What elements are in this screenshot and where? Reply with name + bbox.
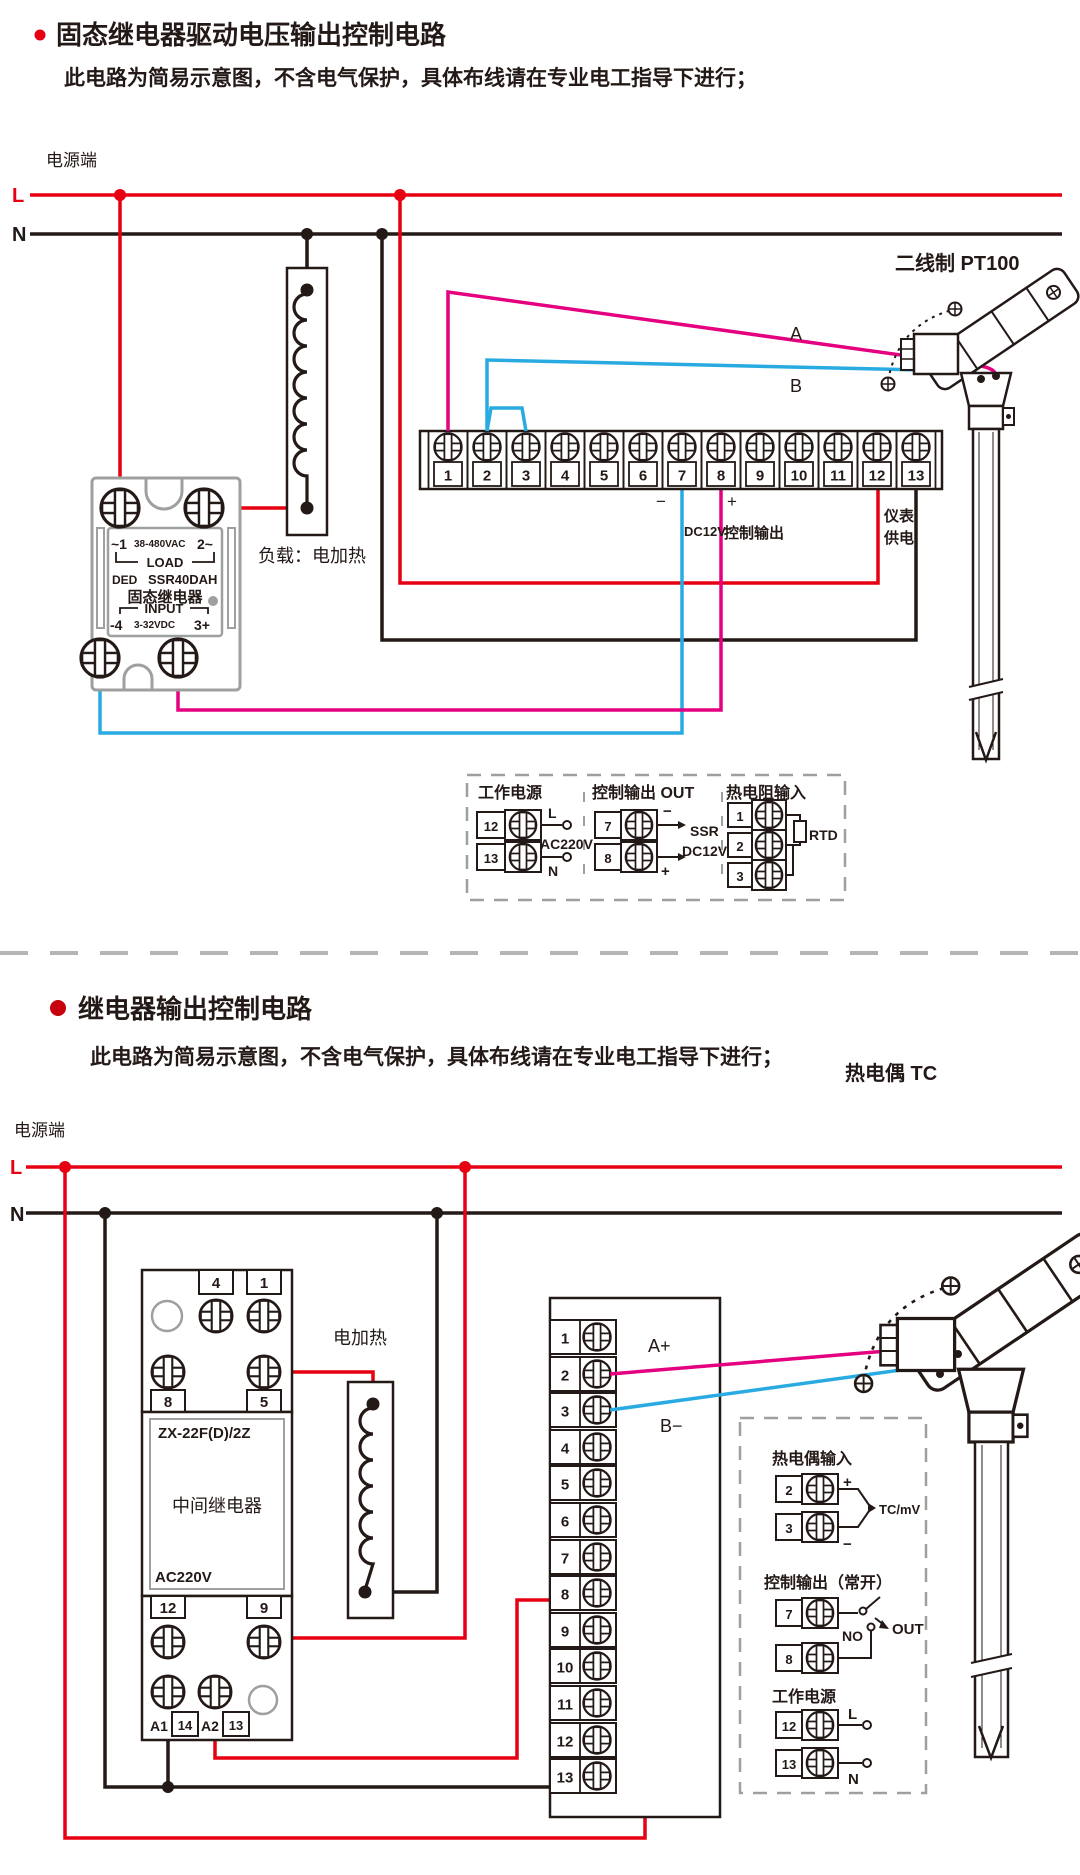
ssr-led	[208, 596, 218, 606]
terminal-number: 8	[717, 468, 725, 485]
relay-terminal: 12	[160, 1600, 177, 1617]
power-terminal-label: 电源端	[46, 151, 97, 170]
ssr-model: SSR40DAH	[148, 572, 217, 587]
terminal-number: 1	[561, 1331, 569, 1348]
legend-terminal: 2	[736, 839, 743, 854]
ctrl-out-label: 控制输出	[724, 524, 784, 542]
wire-b-label: B	[790, 376, 802, 396]
legend-power-2: 工作电源 12 L 13 N	[772, 1687, 871, 1788]
legend-n: N	[848, 1771, 859, 1788]
legend-terminal: 1	[736, 809, 743, 824]
legend-power-title: 工作电源	[478, 783, 542, 802]
line-n-label: N	[12, 224, 26, 246]
meter-supply-label2: 供电	[883, 529, 914, 547]
terminal-number: 1	[444, 468, 452, 485]
section2-subtitle: 此电路为简易示意图，不含电气保护，具体布线请在专业电工指导下进行；	[90, 1045, 783, 1069]
terminal-number: 8	[561, 1587, 569, 1604]
ssr-voltage: 38-480VAC	[134, 539, 186, 550]
legend-rtd-label: RTD	[809, 827, 838, 843]
relay-terminal-a1: A1	[150, 1718, 168, 1734]
legend-terminal: 12	[782, 1719, 796, 1734]
intermediate-relay: 4 1 8 5 ZX-22F(D)/2Z 中间继电器 AC220V 12 9 A…	[142, 1270, 292, 1740]
legend-dc12v: DC12V	[682, 843, 728, 859]
terminal-number: 4	[561, 468, 570, 485]
ssr-terminal1: ~1	[111, 536, 127, 552]
legend-tc-input: 热电偶输入 2 + 3 − TC/mV	[772, 1449, 921, 1553]
legend-terminal: 7	[604, 819, 611, 834]
legend-rtd: 热电阻输入 1 2 3 RTD	[726, 783, 838, 890]
terminal-strip: 1 2 3 4 5 6 7 8 9 10 11 12 13	[420, 431, 942, 489]
legend-terminal: 8	[604, 851, 611, 866]
legend-tc-title: 热电偶输入	[772, 1449, 852, 1468]
terminal-number: 11	[557, 1697, 573, 1714]
relay-terminal: 14	[178, 1718, 193, 1733]
solid-state-relay: ~1 38-480VAC 2~ LOAD DED SSR40DAH 固态继电器 …	[81, 478, 240, 690]
terminal-number: 6	[639, 468, 647, 485]
wire-l-to-terminal12	[400, 195, 878, 583]
section2-title: 继电器输出控制电路	[78, 994, 313, 1024]
jumper-2-3	[487, 408, 526, 431]
legend-ctrl-out: 控制输出 OUT 7 − 8 + SSR DC12V	[592, 783, 728, 880]
instrument: 1 2 3 4 5 6 7 8 9 10 11 12 13	[550, 1298, 720, 1817]
legend-terminal: 3	[736, 869, 743, 884]
terminal-number: 12	[869, 468, 886, 485]
terminal-number: 3	[522, 468, 530, 485]
relay-voltage: AC220V	[155, 1569, 212, 1586]
legend-terminal: 13	[484, 851, 498, 866]
bullet-icon	[50, 1000, 66, 1016]
wiring-diagram-canvas: 固态继电器驱动电压输出控制电路 此电路为简易示意图，不含电气保护，具体布线请在专…	[0, 0, 1080, 1875]
bullet-icon	[35, 30, 46, 41]
relay-terminal: 4	[212, 1275, 221, 1292]
relay-name: 中间继电器	[172, 1496, 262, 1516]
section-ssr-circuit: 固态继电器驱动电压输出控制电路 此电路为简易示意图，不含电气保护，具体布线请在专…	[12, 20, 1080, 900]
wire-ssr-plus	[178, 489, 721, 710]
terminal-number: 2	[561, 1368, 569, 1385]
legend-terminal: 7	[785, 1607, 792, 1622]
terminal-number: 10	[791, 468, 808, 485]
wiring-diagram-page: 固态继电器驱动电压输出控制电路 此电路为简易示意图，不含电气保护，具体布线请在专…	[0, 0, 1080, 1875]
minus-label: −	[656, 492, 666, 511]
ssr-terminal3: 3+	[194, 617, 210, 633]
legend-power-title: 工作电源	[772, 1687, 836, 1706]
tc-sensor	[855, 1229, 1080, 1758]
legend-no: NO	[842, 1628, 863, 1644]
section1-title: 固态继电器驱动电压输出控制电路	[56, 20, 447, 50]
pt100-label: 二线制 PT100	[895, 251, 1019, 275]
legend-l: L	[848, 1706, 857, 1723]
legend-terminal: 13	[782, 1757, 796, 1772]
junction-dot	[114, 189, 126, 201]
tc-label: 热电偶 TC	[845, 1061, 937, 1085]
line-l-label: L	[10, 1157, 22, 1179]
relay-terminal: 5	[260, 1394, 268, 1411]
legend-minus: −	[663, 803, 672, 820]
terminal-number: 5	[561, 1477, 569, 1494]
terminal-number: 9	[756, 468, 764, 485]
terminal-number: 6	[561, 1514, 569, 1531]
relay-indicator	[249, 1686, 277, 1714]
terminal-number: 7	[678, 468, 686, 485]
relay-model: ZX-22F(D)/2Z	[158, 1425, 251, 1442]
terminal-number: 11	[830, 468, 846, 485]
load-heater	[287, 268, 327, 535]
legend-volt: AC220V	[540, 836, 594, 852]
ssr-input-label: INPUT	[145, 601, 184, 616]
wire-a-label: A	[790, 324, 802, 344]
terminal-number: 5	[600, 468, 608, 485]
legend-terminal: 3	[785, 1521, 792, 1536]
line-n-label: N	[10, 1204, 24, 1226]
ssr-terminal2: 2~	[197, 536, 213, 552]
line-l-label: L	[12, 185, 24, 207]
terminal-number: 3	[561, 1404, 569, 1421]
legend-box: 工作电源 12 L AC220V 13 N 控制输出 OUT 7 −	[467, 775, 845, 900]
ssr-terminal4: -4	[110, 617, 123, 633]
legend-minus: −	[843, 1536, 852, 1553]
legend-out-title: 控制输出（常开）	[764, 1573, 892, 1592]
terminal-number: 13	[908, 468, 925, 485]
relay-terminal: 1	[260, 1275, 268, 1292]
legend-n: N	[548, 863, 558, 879]
ssr-load-label: LOAD	[147, 555, 184, 570]
terminal-number: 12	[557, 1734, 574, 1751]
terminal-number: 7	[561, 1551, 569, 1568]
ssr-brand: DED	[112, 573, 138, 587]
dc12v-label: DC12V	[684, 524, 726, 539]
legend-terminal: 12	[484, 819, 498, 834]
terminal-number: 2	[483, 468, 491, 485]
load-label: 负载：电加热	[258, 546, 366, 566]
junction-dot	[301, 228, 313, 240]
legend-terminal: 8	[785, 1652, 792, 1667]
junction-dot	[376, 228, 388, 240]
relay-terminal: 9	[260, 1600, 268, 1617]
legend-tc-signal: TC/mV	[879, 1502, 921, 1517]
section-relay-circuit: 继电器输出控制电路 此电路为简易示意图，不含电气保护，具体布线请在专业电工指导下…	[10, 994, 1080, 1838]
section1-subtitle: 此电路为简易示意图，不含电气保护，具体布线请在专业电工指导下进行；	[64, 66, 757, 90]
legend-relay-out: 控制输出（常开） 7 NO OUT 8	[764, 1573, 924, 1673]
legend-box-2: 热电偶输入 2 + 3 − TC/mV 控制输出（常开） 7	[740, 1418, 926, 1793]
legend-power: 工作电源 12 L AC220V 13 N	[477, 783, 594, 879]
relay-indicator	[152, 1301, 182, 1331]
wire-a-plus-label: A+	[648, 1336, 671, 1356]
relay-terminal: 13	[229, 1718, 243, 1733]
meter-supply-label1: 仪表	[883, 507, 915, 525]
ssr-input-voltage: 3-32VDC	[134, 620, 175, 631]
terminal-number: 4	[561, 1441, 570, 1458]
junction-dot	[162, 1781, 174, 1793]
relay-terminal-a2: A2	[201, 1718, 219, 1734]
legend-ssr: SSR	[690, 823, 719, 839]
legend-out: OUT	[892, 1621, 924, 1638]
terminal-number: 9	[561, 1624, 569, 1641]
heater-label: 电加热	[333, 1328, 387, 1348]
terminal-number: 10	[557, 1660, 574, 1677]
terminal-number: 13	[557, 1770, 574, 1787]
wire-b-minus-label: B−	[660, 1416, 683, 1436]
heater	[348, 1382, 393, 1618]
relay-terminal: 8	[164, 1394, 172, 1411]
junction-dot	[394, 189, 406, 201]
legend-plus: +	[661, 863, 670, 880]
legend-out-title: 控制输出 OUT	[592, 783, 694, 802]
power-terminal-label: 电源端	[14, 1121, 65, 1140]
plus-label: +	[727, 492, 737, 511]
legend-terminal: 2	[785, 1483, 792, 1498]
legend-l: L	[548, 805, 557, 821]
